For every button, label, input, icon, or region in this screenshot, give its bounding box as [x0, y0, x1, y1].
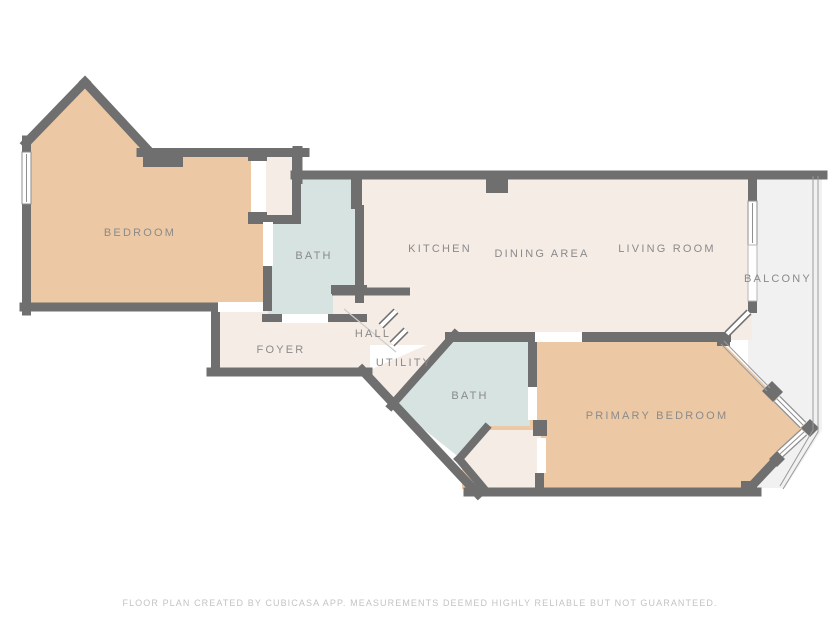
bedroom-bath-door-opening	[263, 222, 273, 266]
room-label-kitchen: KITCHEN	[408, 243, 472, 255]
primary-bedroom-door-opening	[535, 332, 582, 342]
bath-door-opening	[282, 314, 328, 323]
room-label-dining-area: DINING AREA	[494, 248, 589, 260]
room-label-bedroom: BEDROOM	[104, 227, 176, 239]
room-label-living-room: LIVING ROOM	[618, 243, 716, 255]
floor-plan-page: BEDROOM BATH KITCHEN DINING AREA LIVING …	[0, 0, 840, 630]
room-label-hall: HALL	[355, 328, 391, 340]
closet-door-opening	[251, 161, 266, 212]
wall-notch-kitchen	[486, 179, 508, 193]
wall-notch-bedroom	[143, 149, 183, 167]
vestibule-door-opening	[537, 438, 546, 473]
room-label-bath2: BATH	[451, 390, 488, 402]
room-label-balcony: BALCONY	[744, 273, 812, 285]
bedroom-door-opening	[218, 302, 263, 312]
room-label-primary-bedroom: PRIMARY BEDROOM	[586, 410, 729, 422]
room-label-utility: UTILITY	[376, 357, 432, 369]
bath2-door-opening	[528, 387, 537, 420]
floor-plan-svg: BEDROOM BATH KITCHEN DINING AREA LIVING …	[0, 0, 840, 630]
footer-disclaimer: FLOOR PLAN CREATED BY CUBICASA APP. MEAS…	[122, 598, 717, 608]
room-label-foyer: FOYER	[257, 344, 306, 356]
bedroom-floor	[30, 85, 268, 306]
room-label-bath: BATH	[295, 250, 332, 262]
